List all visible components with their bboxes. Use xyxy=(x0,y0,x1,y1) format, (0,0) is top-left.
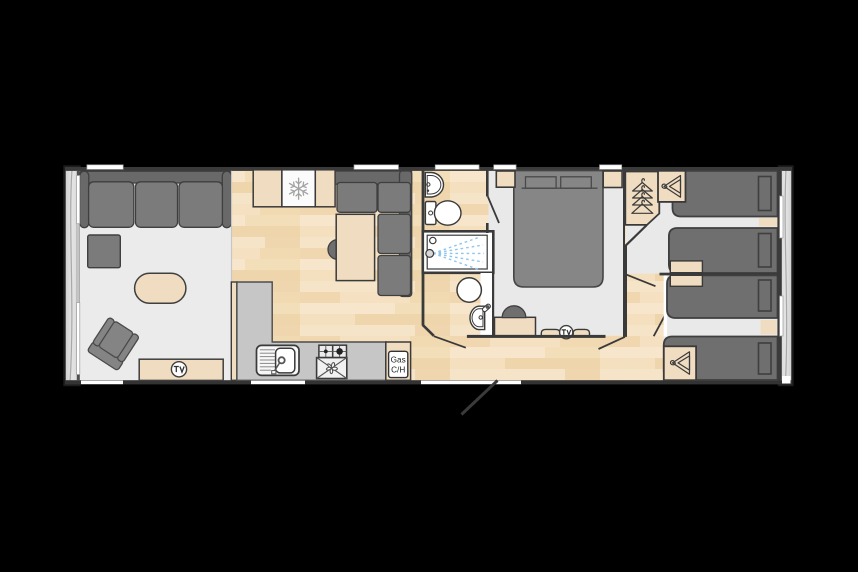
svg-text:Gas: Gas xyxy=(391,356,406,365)
svg-text:C/H: C/H xyxy=(391,366,405,375)
